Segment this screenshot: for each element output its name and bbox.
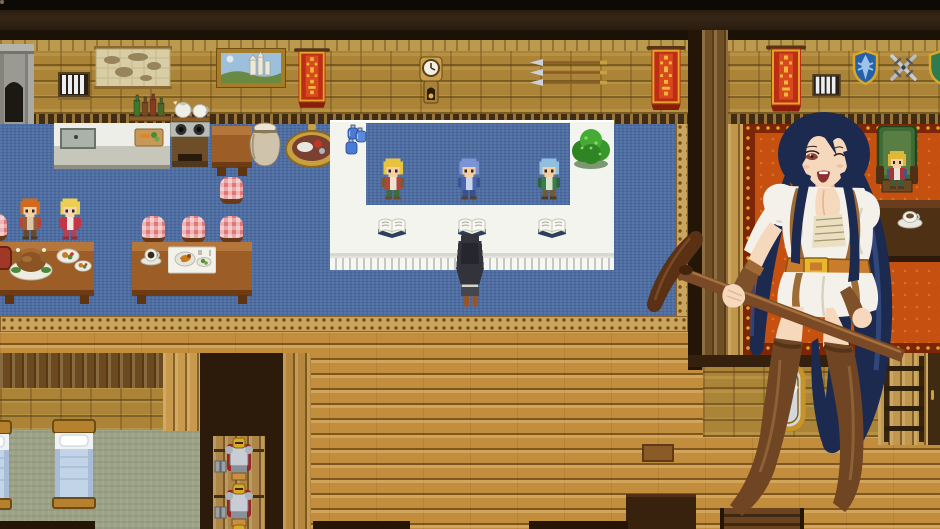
open-book[interactable]	[376, 214, 408, 240]
banner-c	[766, 42, 806, 115]
spears-display	[530, 58, 610, 86]
potion-bottles[interactable]	[342, 124, 368, 156]
ceiling-line	[0, 30, 940, 40]
game-viewport	[0, 0, 940, 529]
placemat-meal	[168, 246, 216, 274]
stool[interactable]	[0, 214, 7, 241]
shelf-bottles	[129, 92, 171, 122]
armor-stand[interactable]	[213, 437, 265, 483]
heroine-overlay[interactable]	[628, 110, 928, 529]
shield-icon-edge	[928, 50, 940, 85]
door-handle	[931, 390, 934, 400]
bed[interactable]	[0, 420, 12, 512]
right-edge-wall	[928, 353, 940, 445]
bed[interactable]	[52, 418, 96, 512]
armor-stand[interactable]	[213, 524, 265, 529]
bottom-wall-segment	[0, 521, 95, 529]
bedroom-wall-wood	[0, 353, 163, 389]
pillar-right	[265, 436, 283, 529]
kitchen-sink	[60, 128, 96, 149]
shield-icon	[852, 50, 879, 85]
cutting-board	[134, 126, 164, 148]
ceiling-top	[0, 0, 940, 10]
chair	[0, 0, 4, 4]
npc-player[interactable]	[452, 234, 488, 310]
stool[interactable]	[142, 216, 165, 243]
coffee-cup	[140, 246, 162, 266]
npc-sprite	[456, 156, 482, 202]
npc-clerk-teal[interactable]	[536, 156, 562, 202]
ceiling-band	[0, 10, 940, 30]
npc-clerk-blond[interactable]	[380, 156, 406, 202]
fireplace	[0, 44, 34, 124]
banner-b	[645, 44, 687, 112]
shelf-jugs	[172, 95, 210, 123]
bedroom-floor	[0, 430, 213, 529]
window-icon	[58, 72, 90, 100]
wall-clock	[416, 52, 446, 108]
window-icon-2	[812, 74, 841, 99]
stool[interactable]	[220, 216, 243, 243]
green-bush	[570, 126, 612, 170]
npc-sprite	[57, 196, 83, 242]
armor-stand[interactable]	[213, 483, 265, 529]
pillar-left	[200, 436, 213, 529]
stove	[170, 122, 210, 170]
npc-sprite	[380, 156, 406, 202]
bottom-wall-segment	[313, 521, 410, 529]
stool[interactable]	[220, 177, 243, 204]
npc-diner-redhead[interactable]	[17, 196, 43, 242]
carpet-border-bottom	[0, 316, 688, 332]
open-book[interactable]	[536, 214, 568, 240]
crossed-swords-icon	[888, 52, 919, 82]
castle-painting	[216, 48, 286, 88]
door-passage[interactable]	[163, 353, 200, 431]
stool[interactable]	[182, 216, 205, 243]
npc-diner-blonde[interactable]	[57, 196, 83, 242]
npc-sprite	[17, 196, 43, 242]
food-plate	[74, 260, 92, 272]
wall-map	[94, 46, 172, 90]
wall-plank-strip	[283, 353, 311, 529]
banner-a	[294, 44, 330, 112]
sink-drain	[74, 135, 78, 139]
turkey-platter	[8, 244, 54, 282]
clay-pot	[246, 120, 284, 168]
bottom-wall-segment	[529, 521, 628, 529]
npc-sprite	[536, 156, 562, 202]
npc-clerk-blue[interactable]	[456, 156, 482, 202]
player-sprite	[452, 234, 488, 310]
pillar-block	[200, 353, 283, 436]
